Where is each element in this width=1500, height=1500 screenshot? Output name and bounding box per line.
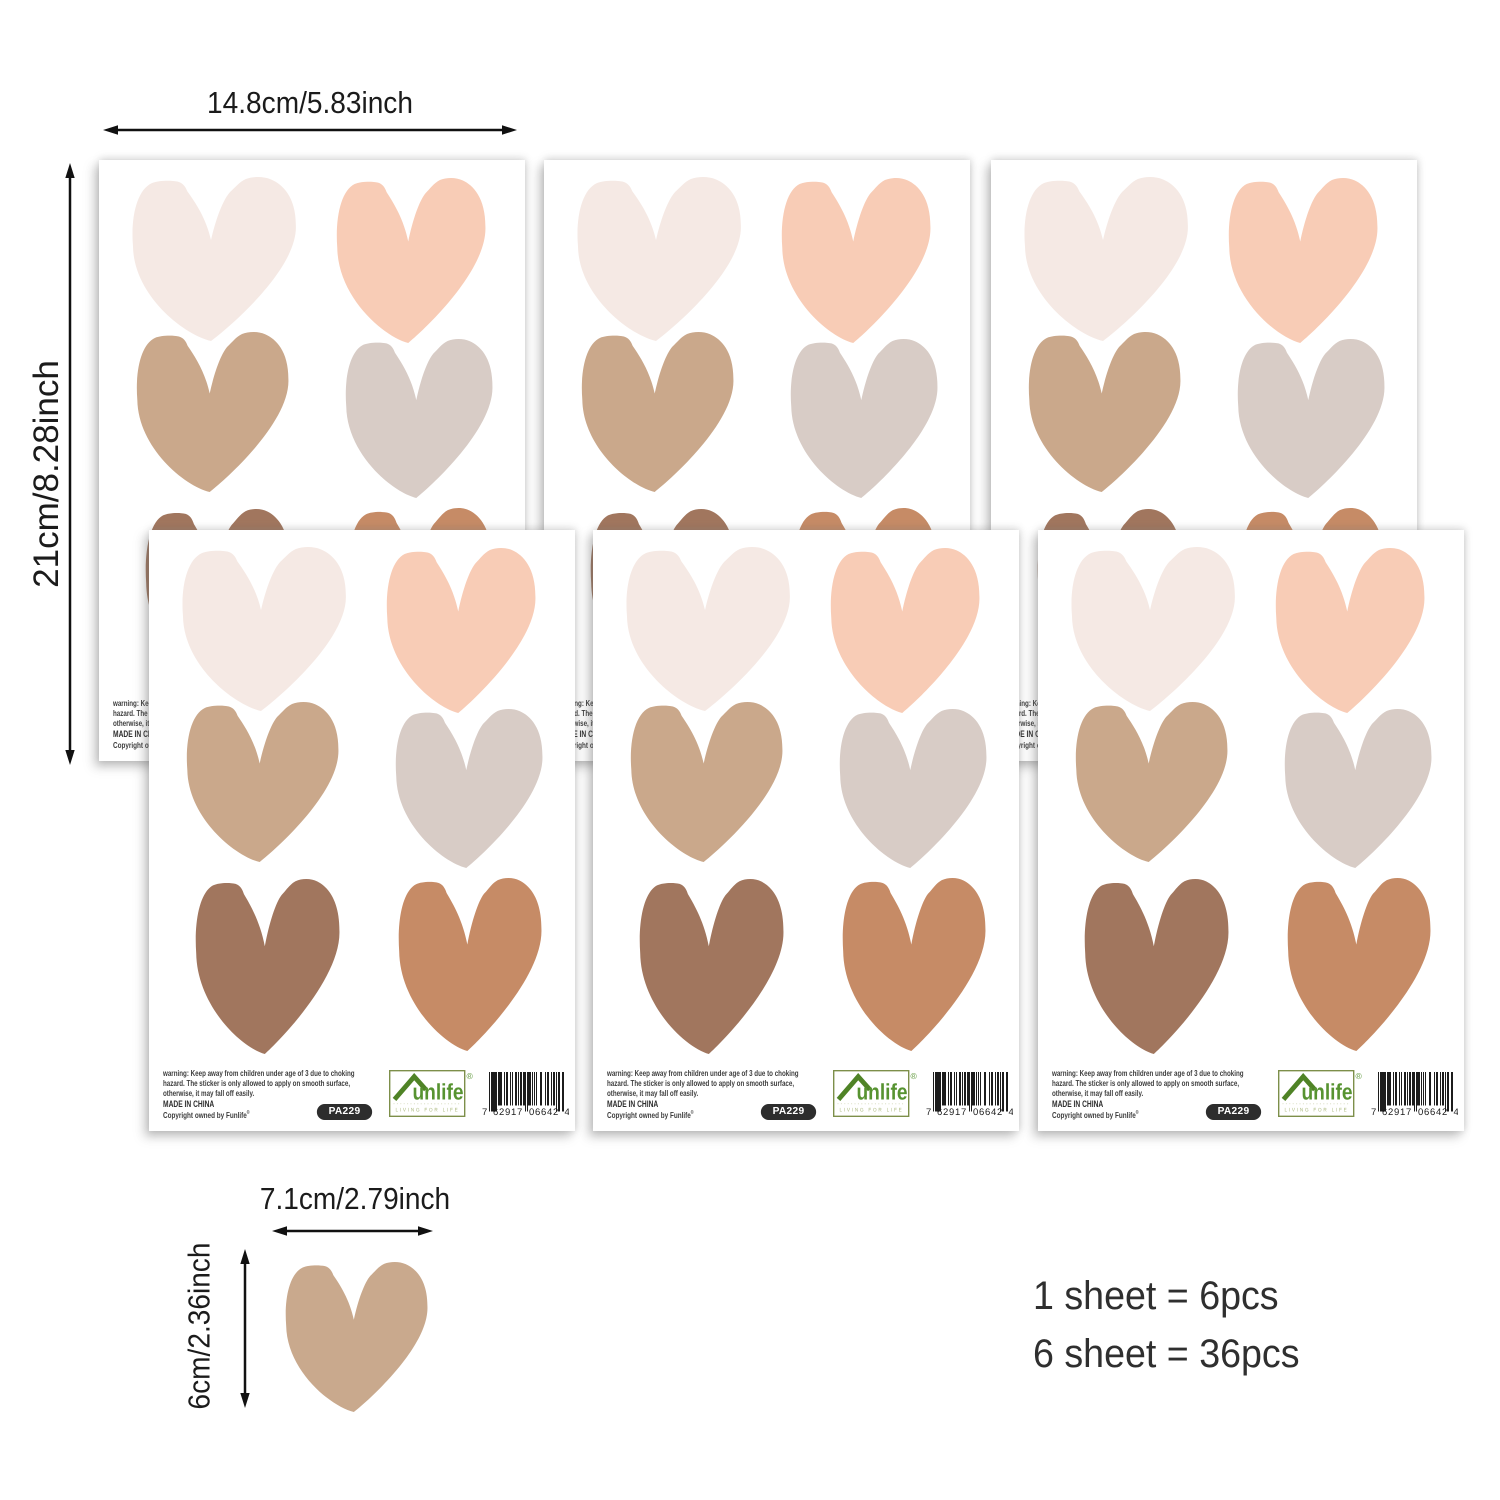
svg-text:LIVING FOR LIFE: LIVING FOR LIFE bbox=[395, 1107, 459, 1113]
svg-text:®: ® bbox=[1356, 1071, 1363, 1081]
svg-text:7: 7 bbox=[1371, 1107, 1376, 1118]
svg-text:06642: 06642 bbox=[529, 1107, 559, 1118]
svg-text:7: 7 bbox=[926, 1107, 931, 1118]
svg-text:62917: 62917 bbox=[937, 1107, 967, 1118]
svg-text:unlife: unlife bbox=[412, 1079, 463, 1104]
svg-text:®: ® bbox=[911, 1071, 918, 1081]
svg-text:62917: 62917 bbox=[493, 1107, 523, 1118]
svg-text:4: 4 bbox=[1453, 1107, 1458, 1118]
svg-text:unlife: unlife bbox=[1301, 1079, 1352, 1104]
svg-text:LIVING FOR LIFE: LIVING FOR LIFE bbox=[839, 1107, 903, 1113]
svg-text:62917: 62917 bbox=[1382, 1107, 1412, 1118]
svg-text:®: ® bbox=[467, 1071, 474, 1081]
svg-text:4: 4 bbox=[564, 1107, 569, 1118]
svg-text:4: 4 bbox=[1008, 1107, 1013, 1118]
svg-text:06642: 06642 bbox=[973, 1107, 1003, 1118]
svg-text:LIVING FOR LIFE: LIVING FOR LIFE bbox=[1284, 1107, 1348, 1113]
svg-text:7: 7 bbox=[482, 1107, 487, 1118]
svg-text:06642: 06642 bbox=[1418, 1107, 1448, 1118]
svg-text:unlife: unlife bbox=[856, 1079, 907, 1104]
